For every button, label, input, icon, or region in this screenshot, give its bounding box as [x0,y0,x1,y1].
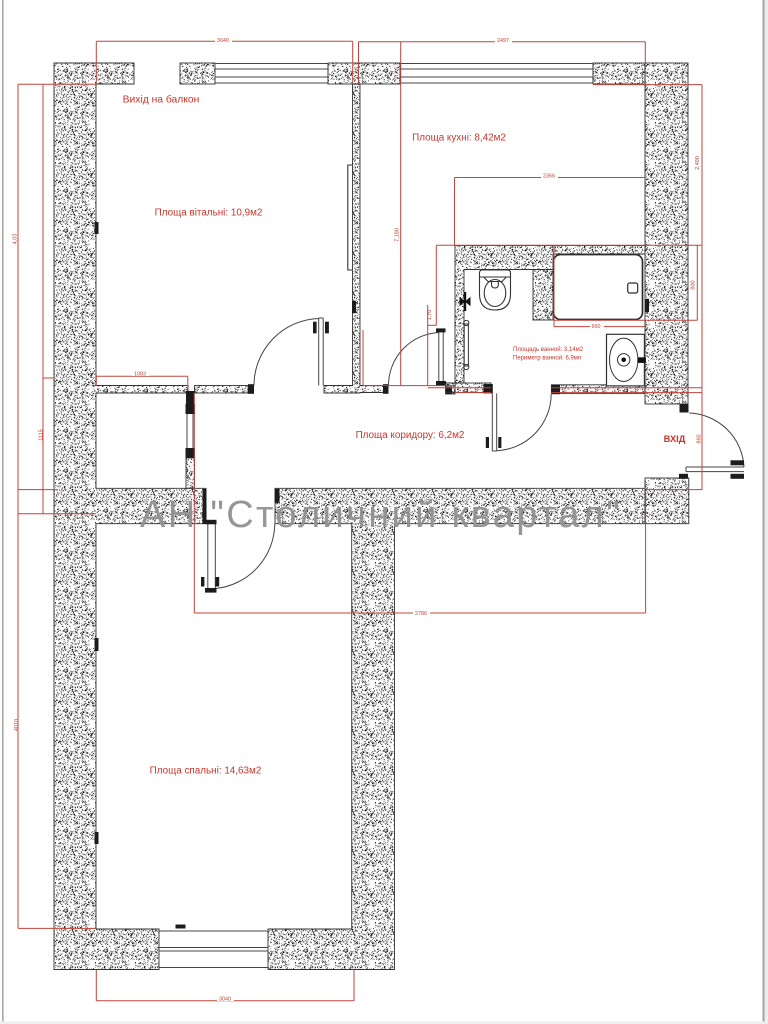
svg-text:800: 800 [691,280,697,289]
svg-text:660: 660 [592,324,601,330]
svg-text:7,180: 7,180 [395,228,401,242]
svg-text:860: 860 [697,434,703,443]
svg-text:Площа спальні: 14,63м2: Площа спальні: 14,63м2 [150,766,262,777]
svg-text:1083: 1083 [134,371,146,377]
svg-text:1,70: 1,70 [427,310,433,321]
svg-text:Площа коридору: 6,2м2: Площа коридору: 6,2м2 [356,430,465,441]
svg-text:2786: 2786 [415,611,427,617]
svg-text:3040: 3040 [219,997,231,1003]
svg-text:2,490: 2,490 [695,156,701,170]
svg-text:4010: 4010 [14,719,20,731]
svg-text:2497: 2497 [497,38,509,44]
svg-text:Площа вітальні: 10,9м2: Площа вітальні: 10,9м2 [155,208,263,219]
svg-text:Площа кухні: 8,42м2: Площа кухні: 8,42м2 [412,133,506,144]
svg-text:4,03: 4,03 [13,234,19,245]
svg-text:1115: 1115 [39,429,45,440]
svg-text:ВХІД: ВХІД [664,434,686,444]
svg-text:2366: 2366 [543,173,555,179]
svg-text:АН "Столичний квартал": АН "Столичний квартал" [140,494,622,536]
svg-text:Периметр ванной: 6,9мп: Периметр ванной: 6,9мп [513,355,581,362]
svg-text:Площадь ванной: 3,14м2: Площадь ванной: 3,14м2 [513,346,584,353]
svg-text:Вихід на балкон: Вихід на балкон [123,94,200,106]
svg-text:3040: 3040 [217,38,229,44]
